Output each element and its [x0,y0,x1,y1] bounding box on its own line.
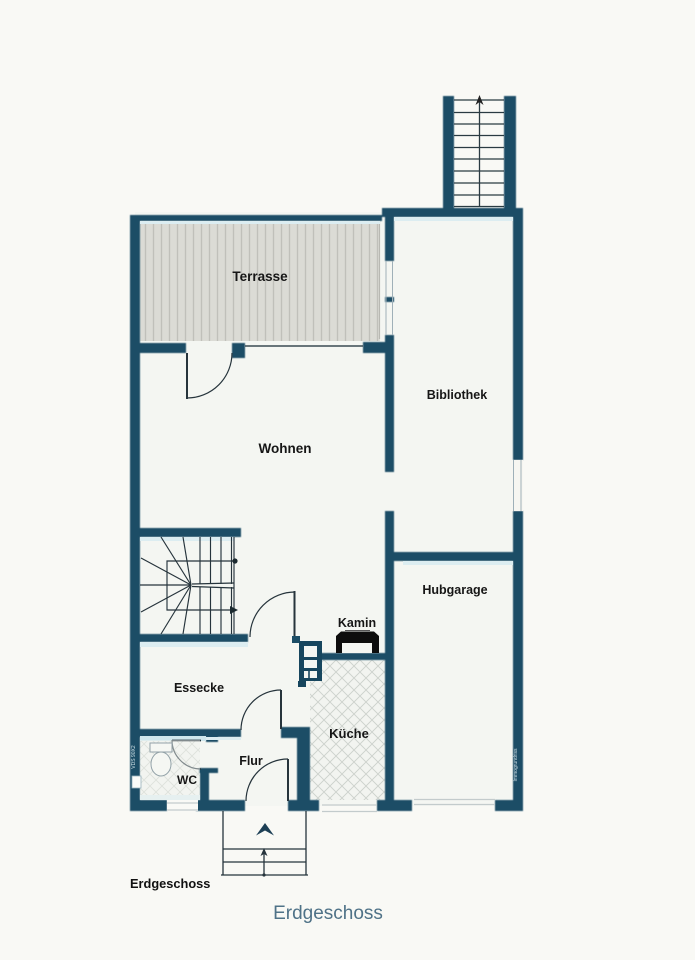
svg-text:Hubgarage: Hubgarage [422,583,487,597]
svg-text:Küche: Küche [329,726,369,741]
svg-text:Terrasse: Terrasse [232,269,288,284]
svg-text:Wohnen: Wohnen [259,441,312,456]
svg-text:Bibliothek: Bibliothek [427,388,487,402]
svg-text:Essecke: Essecke [174,681,224,695]
svg-text:WC: WC [177,773,197,787]
svg-text:Erdgeschoss: Erdgeschoss [130,876,210,891]
svg-text:Erdgeschoss: Erdgeschoss [273,903,383,924]
svg-text:VDS 90X2: VDS 90X2 [131,745,137,769]
svg-text:Immogrundriss: Immogrundriss [513,748,519,782]
svg-text:Flur: Flur [239,754,263,768]
svg-text:Kamin: Kamin [338,616,376,630]
